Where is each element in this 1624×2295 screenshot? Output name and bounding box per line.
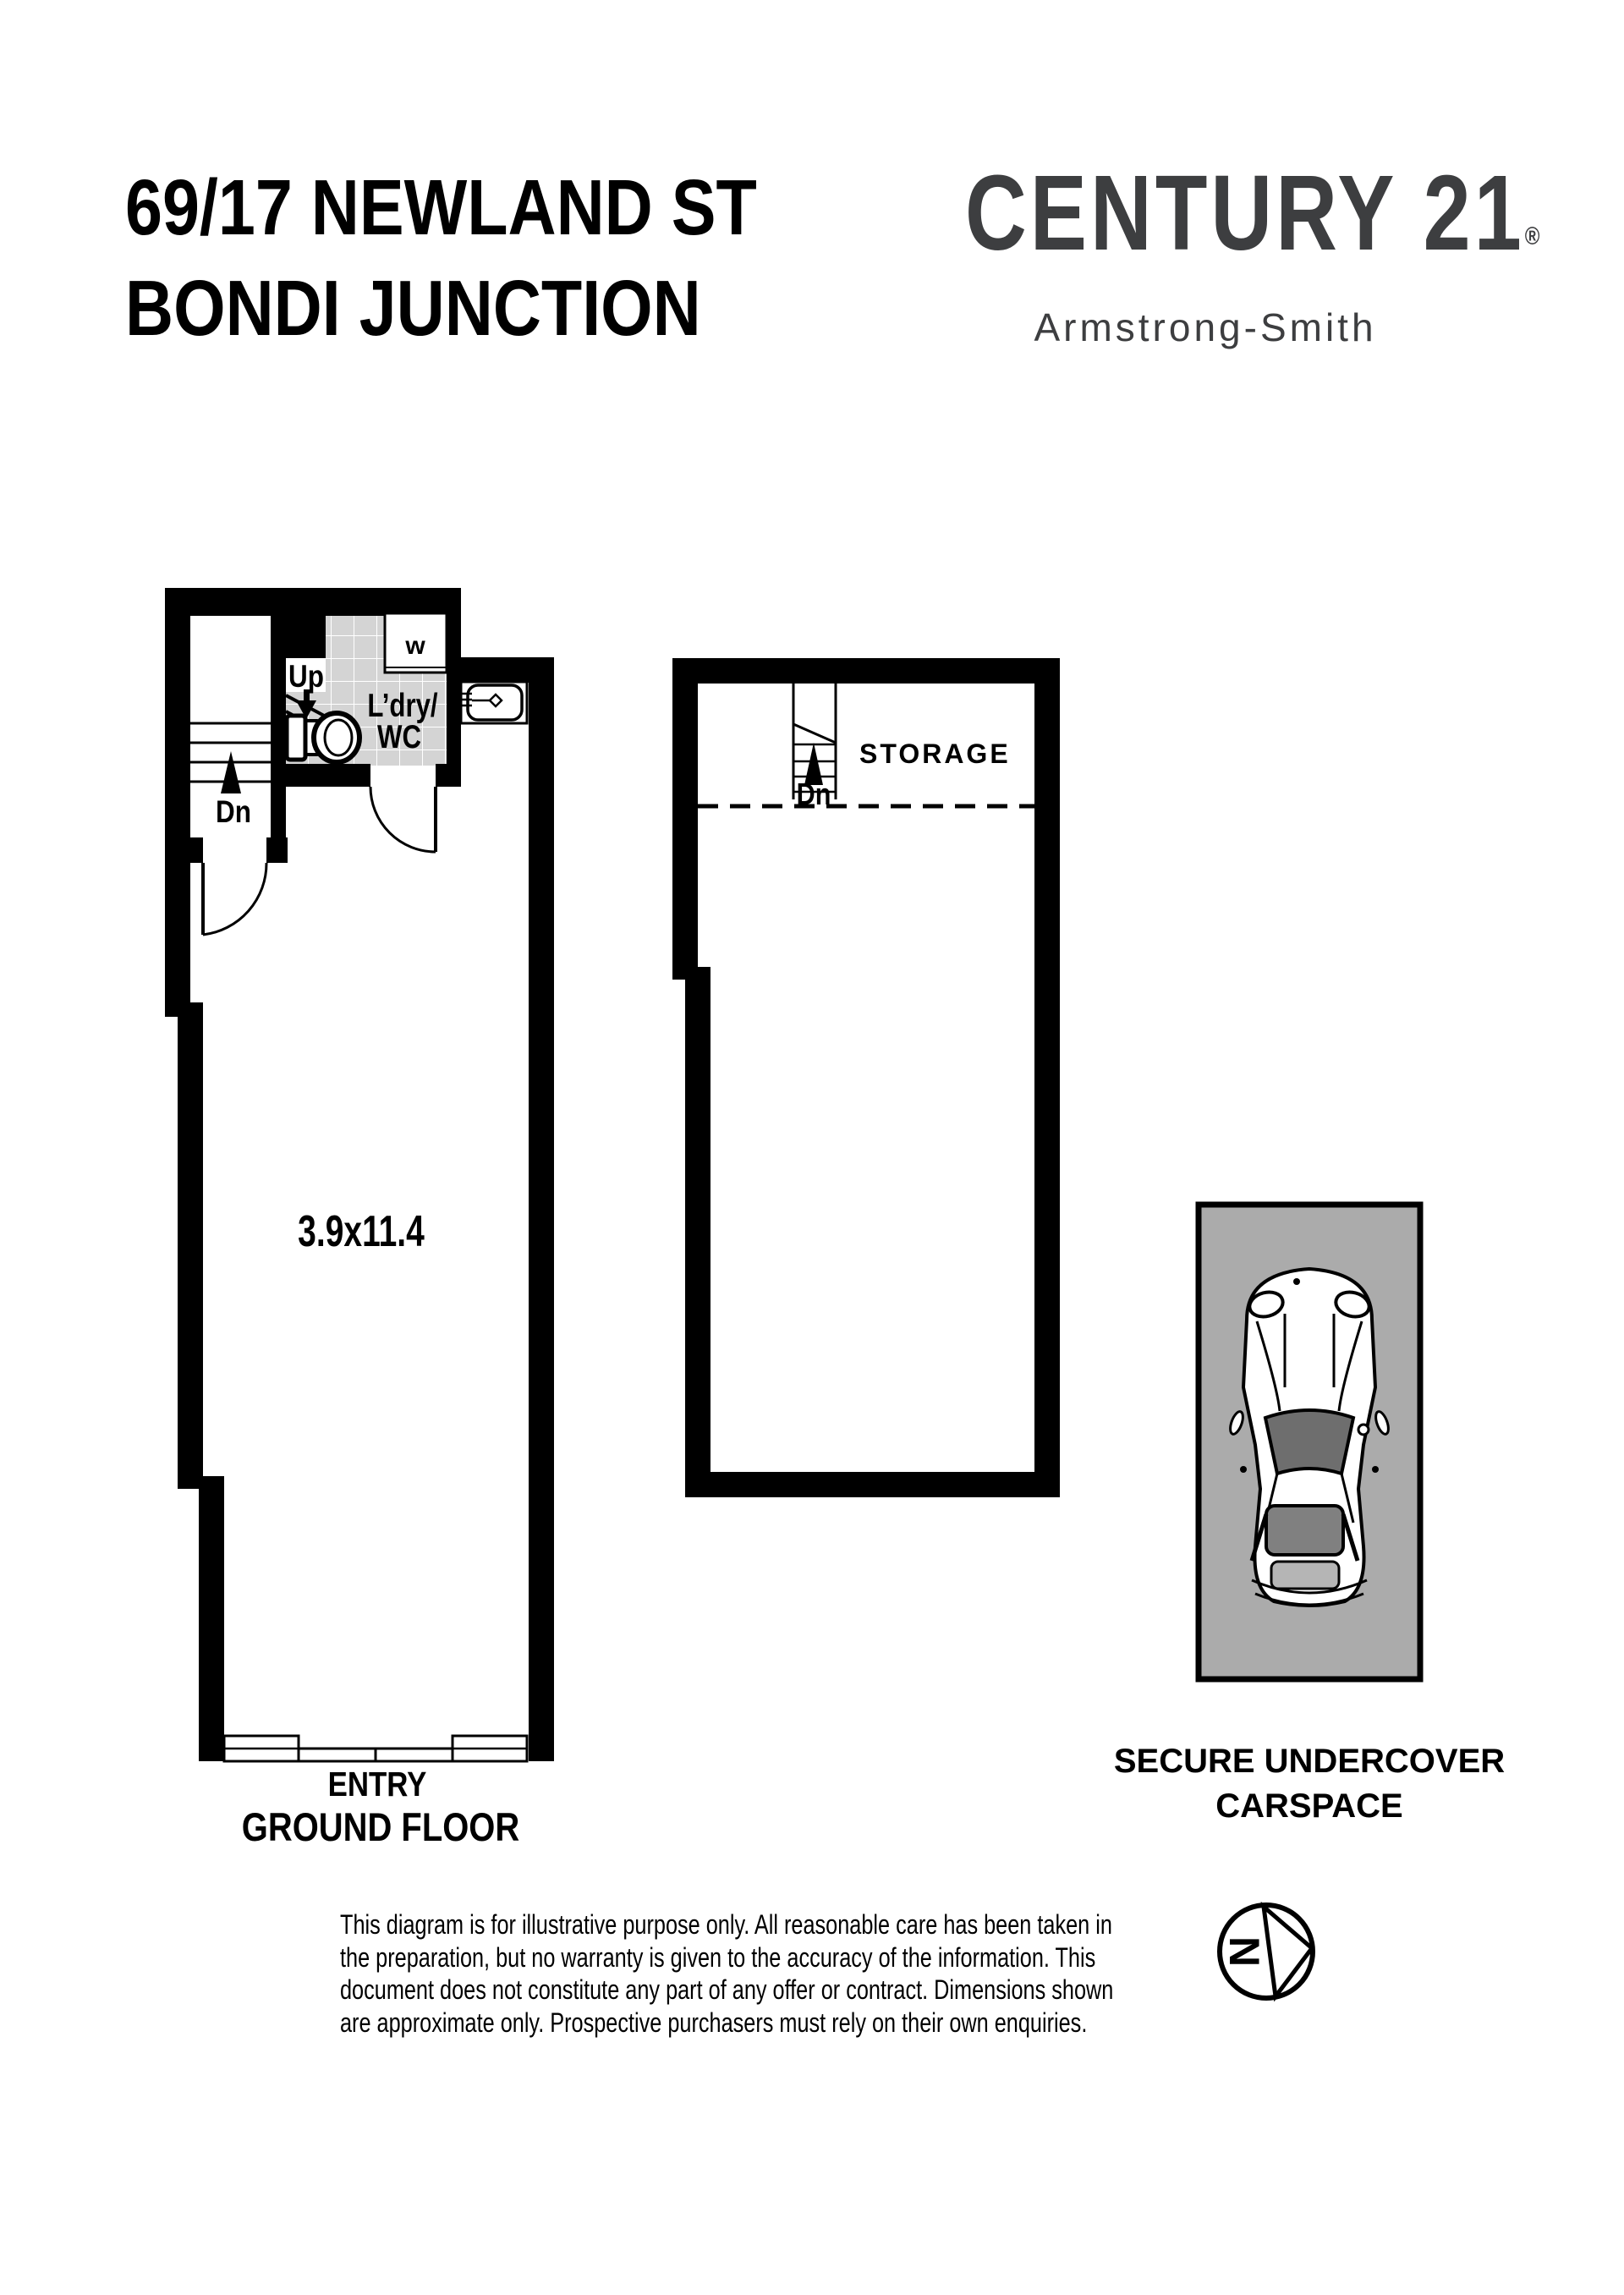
toilet-icon — [287, 713, 359, 762]
entry-sliding-door — [224, 1736, 527, 1761]
disclaimer-line-1: This diagram is for illustrative purpose… — [340, 1908, 1113, 1941]
ground-floor-walls — [165, 588, 554, 1761]
floorplan-page: 69/17 NEWLAND ST BONDI JUNCTION CENTURY … — [0, 0, 1624, 2295]
stairs-down-label: Dn — [216, 795, 251, 830]
room-dimensions-label: 3.9x11.4 — [298, 1205, 425, 1255]
laundry-label-line2: WC — [377, 719, 421, 755]
storage-plan: Dn STORAGE — [672, 658, 1060, 1497]
north-arrow-icon: N — [1220, 1905, 1313, 1998]
north-label: N — [1221, 1936, 1268, 1967]
ground-floor-label: GROUND FLOOR — [242, 1806, 519, 1850]
carspace — [1199, 1205, 1420, 1679]
washer-box: w — [385, 613, 447, 673]
disclaimer-line-4: are approximate only. Prospective purcha… — [340, 2007, 1113, 2040]
stair-hall-door-arc — [203, 863, 266, 935]
stairs-down-arrow-icon — [221, 751, 241, 793]
laundry-door-arc — [370, 787, 436, 852]
stairs-up-label: Up — [288, 660, 324, 695]
entry-label: ENTRY — [328, 1765, 427, 1804]
ground-floor-plan: Dn Up w — [165, 588, 554, 1850]
disclaimer: This diagram is for illustrative purpose… — [340, 1908, 1113, 2039]
storage-label: STORAGE — [859, 738, 1011, 769]
washer-label: w — [404, 632, 425, 660]
storage-walls — [672, 658, 1060, 1497]
disclaimer-line-3: document does not constitute any part of… — [340, 1974, 1113, 2007]
disclaimer-line-2: the preparation, but no warranty is give… — [340, 1941, 1113, 1974]
laundry-tub-icon — [461, 682, 527, 723]
carspace-caption: SECURE UNDERCOVER CARSPACE — [1111, 1739, 1508, 1829]
